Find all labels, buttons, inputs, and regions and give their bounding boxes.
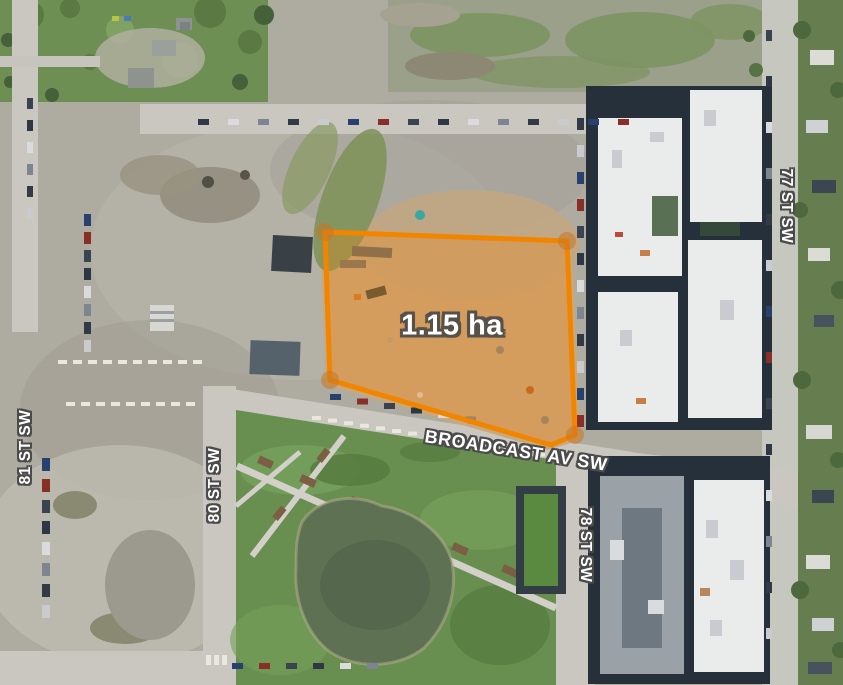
street-label-80-st-sw: 80 ST SW (206, 448, 224, 523)
parcel-vertex-handle[interactable] (558, 232, 576, 250)
parcel-vertex-handle[interactable] (316, 223, 334, 241)
parcel-area-label: 1.15 ha (401, 310, 503, 343)
parcel-vertex-handle[interactable] (321, 371, 339, 389)
parcel-overlay-layer (0, 0, 843, 685)
street-label-77-st-sw: 77 ST SW (777, 169, 795, 244)
parcel-vertex-handle[interactable] (566, 426, 584, 444)
street-label-81-st-sw: 81 ST SW (17, 410, 35, 485)
street-label-78-st-sw: 78 ST SW (576, 508, 594, 583)
map-viewport[interactable]: 1.15 ha BROADCAST AV SW 77 ST SW 78 ST S… (0, 0, 843, 685)
